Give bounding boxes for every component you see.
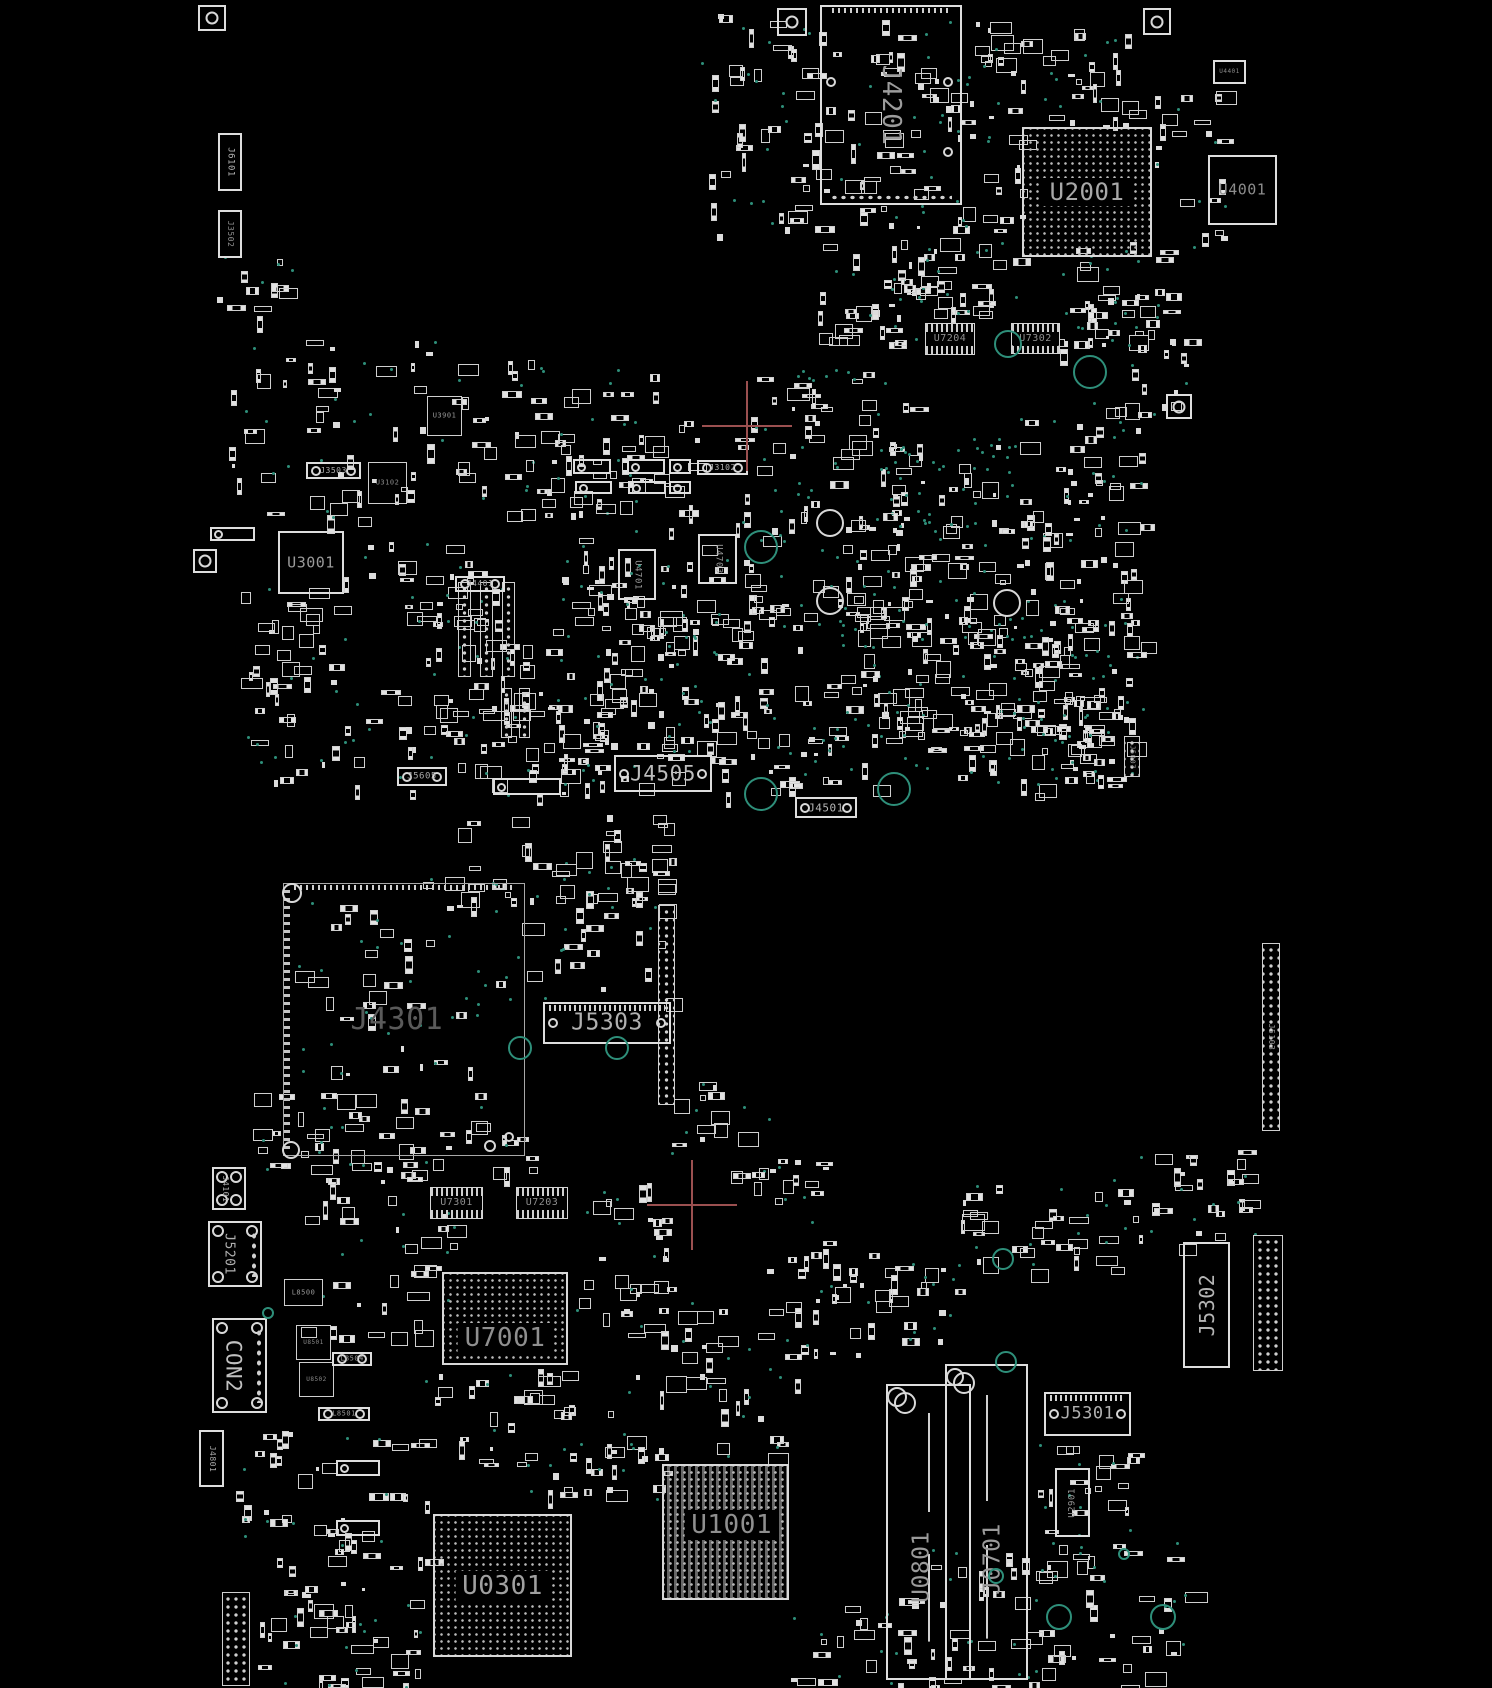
via-dot bbox=[1105, 1241, 1108, 1244]
component-U7001[interactable]: U7001 bbox=[442, 1272, 568, 1365]
via-dot bbox=[486, 1383, 489, 1386]
component-J4301[interactable]: J4301 bbox=[283, 883, 525, 1156]
smd-part bbox=[339, 1335, 355, 1343]
component-U4703[interactable]: U4703 bbox=[698, 534, 737, 584]
smd-pad bbox=[702, 1345, 707, 1349]
smd-pad bbox=[1017, 564, 1024, 568]
smd-part bbox=[590, 694, 604, 705]
via-dot bbox=[673, 750, 676, 753]
via-dot bbox=[938, 468, 941, 471]
via-dot bbox=[976, 1185, 979, 1188]
smd-part bbox=[584, 1489, 592, 1496]
via-dot bbox=[803, 1196, 806, 1199]
smd-pad bbox=[963, 1200, 966, 1206]
smd-part bbox=[1238, 1150, 1257, 1155]
via-dot bbox=[598, 1468, 601, 1471]
via-dot bbox=[1008, 446, 1011, 449]
via-dot bbox=[1081, 327, 1084, 330]
smd-part bbox=[526, 460, 533, 472]
smd-part bbox=[721, 171, 730, 178]
smd-part bbox=[788, 211, 808, 224]
smd-part bbox=[281, 1163, 291, 1169]
smd-pad bbox=[449, 699, 453, 702]
smd-part bbox=[229, 447, 236, 461]
component-U8501[interactable]: U8501 bbox=[296, 1325, 331, 1360]
via-dot bbox=[793, 1617, 796, 1620]
via-dot bbox=[493, 1429, 496, 1432]
smd-ic bbox=[786, 1302, 802, 1312]
smd-pad bbox=[530, 898, 534, 905]
smd-part bbox=[1156, 257, 1174, 263]
smd-part bbox=[904, 285, 916, 293]
smd-part bbox=[811, 1191, 824, 1196]
via-dot bbox=[356, 703, 359, 706]
component-U3901[interactable]: U3901 bbox=[427, 396, 462, 436]
component-J5302[interactable]: J5302 bbox=[1183, 1242, 1230, 1368]
smd-part bbox=[1118, 1189, 1134, 1197]
smd-part bbox=[719, 1309, 728, 1316]
smd-part bbox=[665, 652, 676, 656]
component-label: J4801 bbox=[208, 1445, 216, 1472]
component-U4001[interactable]: U4001 bbox=[1208, 155, 1277, 225]
component-J5301[interactable]: J5301 bbox=[1044, 1392, 1131, 1436]
via-dot bbox=[974, 522, 977, 525]
via-dot bbox=[939, 538, 942, 541]
smd-part bbox=[775, 1198, 783, 1206]
smd-part bbox=[286, 358, 296, 362]
smd-part bbox=[719, 1389, 727, 1402]
via-dot bbox=[1042, 733, 1045, 736]
component-U4701[interactable]: U4701 bbox=[618, 549, 656, 600]
smd-part bbox=[1155, 1154, 1173, 1164]
smd-part bbox=[564, 1487, 573, 1494]
component-label: U4701 bbox=[633, 560, 642, 590]
via-dot bbox=[898, 609, 901, 612]
smd-part bbox=[682, 619, 688, 632]
smd-part bbox=[669, 528, 674, 539]
smd-part bbox=[1008, 108, 1023, 114]
smd-ic bbox=[615, 1275, 629, 1288]
via-dot bbox=[895, 216, 898, 219]
smd-part bbox=[955, 254, 964, 261]
smd-part bbox=[853, 254, 860, 271]
smd-part bbox=[823, 1241, 837, 1245]
mounting-hole bbox=[988, 1568, 1004, 1584]
smd-ic bbox=[697, 1311, 714, 1325]
smd-part bbox=[1042, 637, 1049, 657]
via-dot bbox=[933, 1327, 936, 1330]
smd-part bbox=[717, 732, 737, 744]
via-dot bbox=[993, 655, 996, 658]
via-dot bbox=[774, 489, 777, 492]
smd-ic bbox=[373, 1637, 389, 1648]
smd-pad bbox=[816, 1299, 821, 1302]
component-label: L8504 bbox=[340, 1356, 364, 1363]
smd-part bbox=[654, 628, 661, 642]
via-dot bbox=[1103, 480, 1106, 483]
smd-part bbox=[553, 629, 564, 636]
smd-ic bbox=[990, 22, 1011, 34]
component-label: U7204 bbox=[927, 332, 974, 346]
via-dot bbox=[1069, 539, 1072, 542]
smd-part bbox=[845, 1606, 861, 1613]
via-dot bbox=[698, 711, 701, 714]
smd-part bbox=[546, 649, 563, 655]
smd-part bbox=[804, 133, 812, 143]
smd-part bbox=[363, 1553, 382, 1559]
component-J5007[interactable]: J5007 bbox=[1124, 736, 1140, 777]
via-dot bbox=[884, 382, 887, 385]
component-J4401[interactable]: J4401 bbox=[455, 576, 505, 592]
smd-part bbox=[620, 501, 633, 515]
pin-1-mark bbox=[673, 463, 682, 472]
component-label: J3503 bbox=[320, 467, 347, 475]
via-dot bbox=[939, 580, 942, 583]
via-dot bbox=[1009, 618, 1012, 621]
smd-part bbox=[723, 619, 740, 629]
smd-part bbox=[823, 777, 829, 785]
component-U4401[interactable]: U4401 bbox=[1213, 60, 1246, 84]
smd-pad bbox=[889, 304, 895, 307]
smd-part bbox=[572, 602, 591, 609]
via-dot bbox=[1030, 537, 1033, 540]
via-dot bbox=[261, 281, 264, 284]
smd-part bbox=[403, 1494, 407, 1503]
smd-part bbox=[1093, 84, 1097, 103]
via-dot bbox=[821, 549, 824, 552]
corner-hole bbox=[230, 1171, 242, 1183]
smd-part bbox=[244, 429, 257, 434]
component-L8500[interactable]: L8500 bbox=[284, 1279, 323, 1306]
smd-part bbox=[884, 703, 888, 715]
smd-part bbox=[758, 738, 770, 749]
smd-part bbox=[408, 747, 413, 759]
smd-part bbox=[631, 700, 638, 717]
component-U3001[interactable]: U3001 bbox=[278, 531, 344, 594]
via-dot bbox=[563, 1448, 566, 1451]
smd-part bbox=[1139, 453, 1146, 465]
via-dot bbox=[1104, 624, 1107, 627]
component-U7301[interactable]: U7301 bbox=[430, 1187, 483, 1219]
smd-part bbox=[1242, 1200, 1261, 1209]
via-dot bbox=[1096, 650, 1099, 653]
smd-pad bbox=[669, 664, 674, 667]
via-dot bbox=[1084, 54, 1087, 57]
via-dot bbox=[992, 455, 995, 458]
via-dot bbox=[955, 599, 958, 602]
via-dot bbox=[1131, 364, 1134, 367]
via-dot bbox=[872, 646, 875, 649]
component-U7204[interactable]: U7204 bbox=[925, 323, 975, 355]
smd-ic bbox=[322, 1463, 337, 1474]
via-dot bbox=[1065, 312, 1068, 315]
smd-part bbox=[414, 386, 427, 394]
smd-pad bbox=[490, 1447, 493, 1450]
smd-part bbox=[815, 226, 834, 233]
via-dot bbox=[292, 1522, 295, 1525]
smd-part bbox=[1056, 467, 1065, 472]
smd-part bbox=[712, 75, 719, 92]
smd-part bbox=[884, 280, 892, 289]
via-dot bbox=[701, 62, 704, 65]
via-dot bbox=[836, 556, 839, 559]
smd-part bbox=[972, 284, 991, 289]
smd-part bbox=[700, 1095, 707, 1101]
smd-ic bbox=[943, 526, 960, 539]
smd-part bbox=[584, 1280, 594, 1290]
via-dot bbox=[742, 521, 745, 524]
smd-part bbox=[319, 645, 326, 656]
smd-part bbox=[517, 1462, 527, 1467]
smd-part bbox=[879, 717, 890, 729]
via-dot bbox=[1079, 1552, 1082, 1555]
smd-part bbox=[798, 1269, 806, 1280]
smd-part bbox=[583, 743, 602, 747]
component-CON2[interactable]: CON2 bbox=[212, 1318, 267, 1413]
smd-part bbox=[868, 1323, 875, 1341]
via-dot bbox=[789, 752, 792, 755]
smd-part bbox=[1116, 70, 1122, 85]
component-label: J4401 bbox=[467, 580, 494, 588]
smd-part bbox=[837, 1636, 843, 1648]
smd-part bbox=[1051, 50, 1069, 60]
smd-part bbox=[636, 931, 643, 946]
smd-part bbox=[344, 577, 349, 592]
smd-pad bbox=[695, 438, 700, 443]
via-dot bbox=[1106, 41, 1109, 44]
via-dot bbox=[1029, 1243, 1032, 1246]
smd-part bbox=[1049, 1489, 1053, 1507]
component-J4201[interactable]: J4201 bbox=[820, 5, 962, 205]
smd-pad bbox=[814, 753, 818, 757]
smd-part bbox=[1174, 1168, 1181, 1188]
component-U2901[interactable]: U2901 bbox=[1055, 1468, 1090, 1537]
smd-part bbox=[1217, 139, 1234, 144]
via-dot bbox=[893, 586, 896, 589]
via-dot bbox=[607, 887, 610, 890]
smd-pad bbox=[1074, 518, 1080, 521]
smd-part bbox=[769, 617, 775, 627]
via-dot bbox=[618, 1222, 621, 1225]
smd-ic bbox=[666, 1376, 687, 1392]
smd-part bbox=[951, 307, 957, 324]
smd-part bbox=[961, 120, 976, 124]
component-J5605[interactable]: J5605 bbox=[397, 767, 447, 786]
smd-part bbox=[919, 555, 938, 560]
smd-part bbox=[1099, 1236, 1119, 1244]
smd-part bbox=[1017, 705, 1035, 713]
via-dot bbox=[582, 769, 585, 772]
smd-part bbox=[1152, 1203, 1160, 1216]
smd-part bbox=[820, 292, 826, 305]
smd-part bbox=[459, 473, 475, 482]
via-dot bbox=[1008, 757, 1011, 760]
smd-part bbox=[1127, 623, 1133, 637]
smd-ic bbox=[1023, 39, 1043, 54]
pin-column-left bbox=[284, 890, 290, 1149]
smd-pad bbox=[1068, 500, 1071, 505]
smd-part bbox=[706, 1343, 723, 1352]
via-dot bbox=[783, 625, 786, 628]
component-J4505[interactable]: J4505 bbox=[614, 755, 712, 792]
smd-part bbox=[928, 748, 947, 753]
smd-part bbox=[381, 690, 401, 694]
smd-pad bbox=[368, 545, 374, 550]
component-J5303[interactable]: J5303 bbox=[543, 1002, 671, 1044]
smd-part bbox=[1228, 1179, 1245, 1186]
via-dot bbox=[783, 540, 786, 543]
component-J3502[interactable]: J3502 bbox=[218, 210, 242, 258]
smd-ic bbox=[627, 877, 650, 892]
smd-part bbox=[679, 510, 698, 517]
via-dot bbox=[623, 1433, 626, 1436]
smd-part bbox=[1142, 384, 1147, 395]
via-dot bbox=[1013, 712, 1016, 715]
component-J5201[interactable]: J5201 bbox=[208, 1221, 262, 1287]
via-dot bbox=[563, 878, 566, 881]
smd-part bbox=[776, 608, 791, 616]
smd-ic bbox=[254, 1093, 272, 1107]
via-dot bbox=[446, 1251, 449, 1254]
component-L8501[interactable]: L8501 bbox=[318, 1407, 370, 1421]
smd-part bbox=[636, 897, 648, 901]
via-dot bbox=[549, 1464, 552, 1467]
smd-part bbox=[1020, 1248, 1035, 1258]
component-J4801[interactable]: J4801 bbox=[199, 1430, 224, 1487]
smd-part bbox=[368, 1332, 385, 1339]
via-dot bbox=[665, 631, 668, 634]
component-label: J5301 bbox=[1061, 1406, 1115, 1423]
via-dot bbox=[1023, 726, 1026, 729]
via-dot bbox=[766, 148, 769, 151]
smd-part bbox=[778, 1159, 788, 1164]
via-dot bbox=[536, 895, 539, 898]
smd-part bbox=[1052, 644, 1059, 658]
via-dot bbox=[682, 692, 685, 695]
smd-part bbox=[424, 726, 436, 734]
via-dot bbox=[997, 102, 1000, 105]
smd-part bbox=[791, 177, 806, 183]
smd-part bbox=[973, 491, 981, 498]
via-dot bbox=[718, 613, 721, 616]
smd-pad bbox=[976, 22, 981, 27]
component-J4101[interactable]: J4101 bbox=[212, 1167, 246, 1210]
via-dot bbox=[345, 1646, 348, 1649]
via-dot bbox=[962, 675, 965, 678]
smd-ic bbox=[1075, 623, 1094, 632]
smd-ic bbox=[298, 1474, 313, 1489]
pin-hole bbox=[656, 1018, 666, 1028]
smd-part bbox=[859, 415, 871, 426]
via-dot bbox=[676, 663, 679, 666]
via-dot bbox=[580, 1443, 583, 1446]
component-U3102[interactable]: U3102 bbox=[368, 462, 407, 504]
fiducial-mark bbox=[193, 549, 217, 573]
smd-part bbox=[1020, 499, 1032, 505]
component-U8502[interactable]: U8502 bbox=[299, 1362, 334, 1397]
via-dot bbox=[1098, 524, 1101, 527]
via-dot bbox=[610, 683, 613, 686]
smd-ic bbox=[1118, 522, 1141, 535]
component-U7203[interactable]: U7203 bbox=[516, 1187, 568, 1219]
boardview-canvas[interactable]: J6101J3502J4201U2001U4001U4401U7204U7302… bbox=[0, 0, 1492, 1688]
smd-ic bbox=[351, 1645, 373, 1654]
via-dot bbox=[808, 32, 811, 35]
smd-part bbox=[446, 731, 464, 738]
smd-ic bbox=[738, 631, 754, 641]
via-dot bbox=[916, 460, 919, 463]
smd-part bbox=[1167, 1557, 1185, 1562]
via-dot bbox=[591, 418, 594, 421]
via-dot bbox=[465, 734, 468, 737]
via-dot bbox=[1125, 529, 1128, 532]
component-J0701[interactable]: J0701 bbox=[945, 1364, 1028, 1680]
component-L8504[interactable]: L8504 bbox=[332, 1352, 372, 1366]
via-dot bbox=[952, 1278, 955, 1281]
smd-part bbox=[282, 626, 294, 640]
mounting-hole bbox=[1046, 1604, 1072, 1630]
smd-part bbox=[1123, 1664, 1132, 1673]
smd-part bbox=[585, 783, 590, 799]
smd-pad bbox=[1172, 339, 1176, 346]
via-dot bbox=[975, 1246, 978, 1249]
component-U1001[interactable]: U1001 bbox=[662, 1464, 789, 1600]
via-dot bbox=[1055, 78, 1058, 81]
smd-ic bbox=[507, 511, 522, 522]
smd-part bbox=[400, 578, 414, 583]
smd-pad bbox=[1102, 343, 1105, 347]
via-dot bbox=[695, 1109, 698, 1112]
component-U0301[interactable]: U0301 bbox=[433, 1514, 572, 1657]
via-dot bbox=[1106, 268, 1109, 271]
via-dot bbox=[623, 423, 626, 426]
smd-ic bbox=[551, 478, 565, 493]
smd-ic bbox=[948, 563, 967, 579]
component-U2001[interactable]: U2001 bbox=[1022, 127, 1152, 257]
via-dot bbox=[580, 585, 583, 588]
smd-part bbox=[1074, 1247, 1081, 1255]
component-J6101[interactable]: J6101 bbox=[218, 133, 242, 191]
via-dot bbox=[838, 1675, 841, 1678]
smd-ic bbox=[446, 545, 465, 554]
via-dot bbox=[987, 140, 990, 143]
component-J4501[interactable]: J4501 bbox=[795, 797, 857, 818]
smd-part bbox=[600, 781, 605, 793]
smd-part bbox=[833, 1264, 841, 1281]
smd-part bbox=[958, 775, 967, 780]
smd-part bbox=[895, 1266, 914, 1271]
smd-part bbox=[450, 1243, 458, 1250]
smd-part bbox=[390, 1275, 399, 1288]
via-dot bbox=[1052, 1542, 1055, 1545]
component-label: U8502 bbox=[306, 1377, 327, 1383]
smd-part bbox=[1114, 709, 1121, 714]
smd-part bbox=[612, 653, 619, 665]
via-dot bbox=[1084, 716, 1087, 719]
smd-part bbox=[1099, 1658, 1116, 1662]
component-J5103[interactable]: J5103 bbox=[1262, 943, 1280, 1131]
smd-part bbox=[1065, 777, 1078, 784]
smd-part bbox=[638, 1447, 645, 1463]
smd-part bbox=[414, 1630, 418, 1638]
smd-part bbox=[389, 542, 394, 552]
component-J3503[interactable]: J3503 bbox=[306, 462, 361, 479]
smd-part bbox=[1072, 94, 1084, 99]
smd-part bbox=[504, 1167, 510, 1186]
smd-part bbox=[316, 412, 324, 424]
smd-part bbox=[407, 1177, 422, 1183]
smd-part bbox=[418, 1557, 424, 1571]
